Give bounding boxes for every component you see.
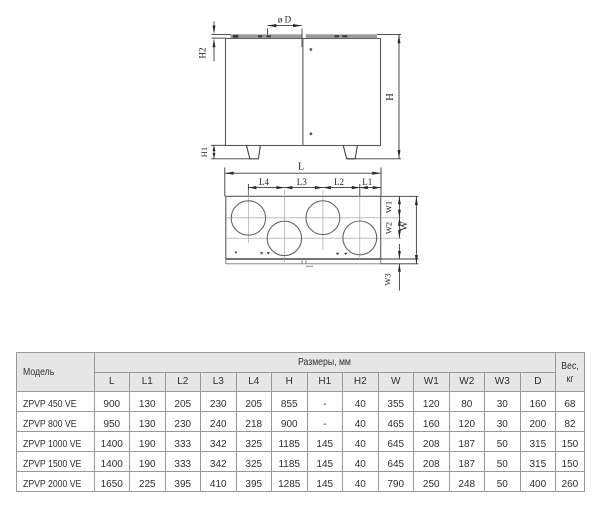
svg-text:L3: L3	[297, 177, 307, 187]
svg-text:L: L	[298, 162, 304, 173]
svg-text:L4: L4	[259, 177, 269, 187]
svg-text:L2: L2	[334, 177, 344, 187]
svg-text:ø D: ø D	[278, 14, 292, 24]
svg-text:H2: H2	[198, 48, 208, 59]
svg-text:H: H	[385, 93, 396, 101]
svg-text:H1: H1	[199, 147, 209, 157]
svg-text:W1: W1	[384, 201, 394, 213]
svg-text:W3: W3	[383, 273, 393, 285]
svg-text:W2: W2	[384, 222, 394, 234]
svg-text:L1: L1	[362, 177, 372, 187]
svg-text:W: W	[399, 221, 410, 231]
